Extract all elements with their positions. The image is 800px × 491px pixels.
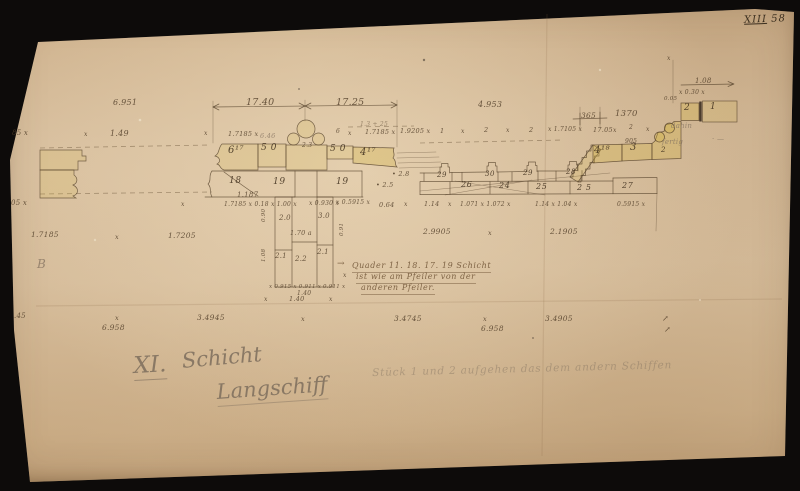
dimension-label: 4.953 (478, 101, 502, 109)
dimension-label: x (115, 315, 119, 322)
stone-number-label: 1 (710, 103, 716, 112)
dimension-label: 1.7185 (31, 231, 59, 239)
dimension-label: .45 (14, 313, 26, 320)
stone-number-label: 2 5 (577, 184, 592, 192)
stone-number-label: 2 (661, 147, 666, 154)
stone-number-label: 26 (461, 181, 472, 189)
dimension-label: x 0.930 x (309, 201, 339, 207)
dimension-label: 2.2 (295, 256, 307, 263)
dimension-label: 1.14 (424, 201, 439, 208)
stone-number-label: 28 (566, 169, 576, 176)
dimension-label: x (667, 56, 671, 62)
dimension-label: x (483, 316, 487, 323)
dimension-label: 17.05 (593, 127, 613, 134)
dimension-label: 1.70 a (290, 230, 312, 237)
dimension-label: • 2.8 (392, 171, 410, 178)
dimension-label: 2 (529, 127, 533, 134)
dimension-label: 1.7205 (168, 232, 196, 240)
center-note-line1: Quader 11. 18. 17. 19 Schicht (352, 262, 491, 273)
dimension-label: 1.49 (110, 130, 129, 138)
dimension-label: x (461, 129, 465, 135)
dimension-label: x (488, 230, 492, 237)
center-note-line2: ist wie am Pfeiler von der (356, 273, 476, 284)
dimension-label: 2.1905 (550, 228, 578, 236)
dimension-label: 2.1 (275, 253, 287, 260)
dimension-label: 1370 (615, 110, 638, 119)
dimension-label: 3.4745 (394, 315, 422, 323)
dimension-label: 1.08 (695, 78, 712, 85)
stone-number-label: 18 (229, 177, 242, 186)
dimension-label: ↗ (662, 315, 669, 323)
dimension-label: x (448, 202, 452, 208)
dimension-label: 0.90 (262, 209, 268, 222)
dimension-label: x (264, 297, 268, 303)
dimension-label: 6 (336, 129, 340, 135)
pencil-note: B (37, 258, 46, 270)
dimension-label: 17.25 (336, 98, 364, 108)
pencil-note: 6.46 (260, 133, 275, 140)
dimension-label: 1.187 (237, 192, 258, 199)
dimension-label: 2.1 (317, 249, 329, 256)
stone-number-label: 5 0 (261, 144, 277, 153)
annotations-layer: 6.951x1.4985 x17.4017.254.9533651370x1.0… (0, 0, 800, 491)
corner-number: 58 (771, 13, 786, 25)
dimension-label: x (404, 202, 408, 208)
dimension-label: x (301, 316, 305, 323)
dimension-label: 1.40 (289, 296, 304, 303)
dimension-label: x (329, 297, 333, 303)
dimension-label: 1.7185 x (228, 131, 258, 138)
dimension-label: 1.08 (262, 249, 268, 262)
stone-number-label: 4¹⁸ (594, 146, 610, 156)
stone-number-label: 27 (622, 182, 633, 190)
dimension-label: 1.9205 x (400, 128, 430, 135)
dimension-label: 0.64 (379, 202, 394, 209)
dimension-label: 3.4905 (545, 315, 573, 323)
dimension-label: x (204, 131, 208, 137)
pencil-note: fertig (662, 139, 683, 146)
center-note-line3: anderen Pfeiler. (361, 284, 435, 295)
stone-number-label: 6¹⁷ (228, 146, 244, 156)
stone-number-label: 19 (273, 178, 286, 187)
stone-number-label: 5 0 (330, 145, 346, 154)
dimension-label: 85 x (12, 130, 28, 137)
dimension-label: 3.4945 (197, 314, 225, 322)
stone-number-label: 3 (630, 143, 637, 153)
dimension-label: 1.3 + 25 (360, 122, 388, 128)
dimension-label: 2 (484, 127, 488, 134)
dimension-label: x 1.7105 x (548, 127, 582, 133)
dimension-label: 2 (629, 125, 633, 131)
dimension-label: 1.071 x 1.072 x (460, 202, 511, 208)
dimension-label: x (84, 132, 88, 138)
dimension-label: x 0.30 x (679, 90, 705, 96)
dimension-label: 3.0 (318, 213, 330, 220)
dimension-label: 05 x (11, 200, 27, 207)
dimension-label: 6.958 (481, 325, 504, 333)
dimension-label: 17.40 (246, 98, 274, 108)
dimension-label: 6.958 (102, 324, 125, 332)
note-arrow-icon: → (337, 260, 345, 269)
dimension-label: x (115, 234, 119, 241)
stone-number-label: 4¹⁷ (360, 148, 376, 158)
corner-roman-numeral: XIII (744, 14, 767, 26)
dimension-label: 0.91 (340, 223, 346, 236)
course-number-label: XI. (133, 353, 167, 381)
dimension-label: 2.0 (279, 215, 291, 222)
dimension-label: x 0.5915 x (336, 200, 370, 206)
dimension-label: 6.951 (113, 99, 137, 107)
stone-number-label: 24 (499, 182, 510, 190)
dimension-label: x (343, 273, 347, 279)
dimension-label: 0.5915 x (617, 202, 645, 208)
dimension-label: 1.14 x 1.04 x (535, 202, 577, 208)
dimension-label: 365 (581, 112, 596, 120)
dimension-label: ↗ (664, 326, 671, 334)
dimension-label: x (348, 131, 352, 137)
dimension-label: 0.05 (664, 97, 677, 103)
dimension-label: • 2.5 (376, 182, 394, 189)
dimension-label: x (646, 127, 650, 133)
stone-number-label: 25 (536, 183, 547, 191)
dimension-label: 2.3 (302, 143, 312, 149)
stone-number-label: 30 (485, 171, 495, 178)
stone-number-label: 29 (523, 170, 533, 177)
dimension-label: 1.7185 x (365, 129, 395, 136)
dimension-label: x (181, 202, 185, 208)
stone-number-label: 29 (437, 172, 447, 179)
stone-number-label: 2 (684, 104, 690, 113)
pencil-note: · — (712, 136, 724, 143)
stone-number-label: 19 (336, 178, 349, 187)
corner-label: XIII 58 (744, 14, 786, 25)
dimension-label: x (613, 128, 617, 134)
pencil-note: dahin (671, 123, 692, 130)
dimension-label: 1.7185 x 0.18 x 1.00 x (224, 202, 297, 208)
dimension-label: 1 (440, 128, 444, 135)
dimension-label: 2.9905 (423, 228, 451, 236)
dimension-label: x (506, 128, 510, 134)
scanned-drawing-scene: 6.951x1.4985 x17.4017.254.9533651370x1.0… (0, 0, 800, 491)
